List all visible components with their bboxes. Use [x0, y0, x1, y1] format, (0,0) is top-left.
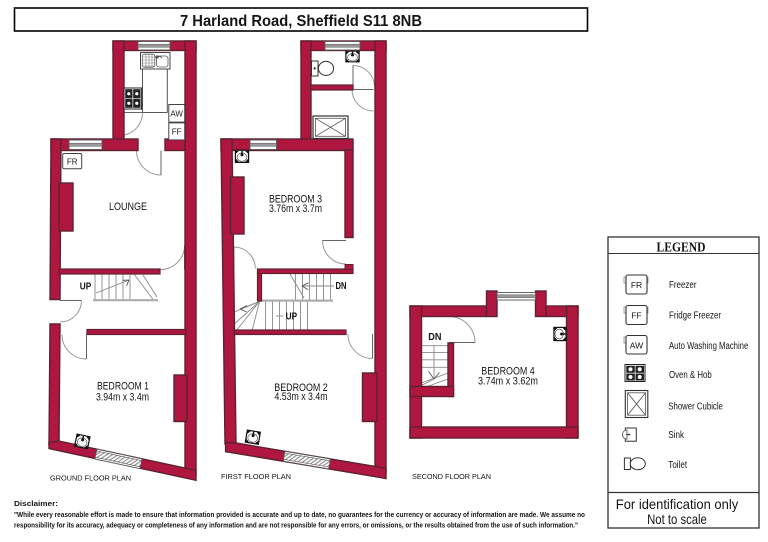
svg-text:FF: FF [631, 311, 641, 321]
svg-text:Fridge Freezer: Fridge Freezer [669, 311, 722, 322]
svg-text:7 Harland Road, Sheffield S11: 7 Harland Road, Sheffield S11 8NB [180, 13, 422, 30]
svg-text:AW: AW [630, 341, 643, 351]
svg-text:GROUND FLOOR PLAN: GROUND FLOOR PLAN [50, 474, 131, 483]
svg-text:FR: FR [67, 158, 78, 167]
svg-text:FR: FR [631, 280, 642, 290]
svg-text:Auto Washing Machine: Auto Washing Machine [669, 341, 749, 352]
svg-text:Sink: Sink [668, 430, 685, 441]
svg-text:Freezer: Freezer [669, 280, 697, 291]
svg-text:4.53m x 3.4m: 4.53m x 3.4m [275, 391, 328, 403]
svg-text:"While every reasonable effort: "While every reasonable effort is made t… [14, 512, 585, 519]
svg-text:LOUNGE: LOUNGE [109, 201, 147, 213]
svg-text:FIRST FLOOR PLAN: FIRST FLOOR PLAN [221, 472, 291, 481]
svg-text:DN: DN [336, 281, 347, 292]
svg-text:FF: FF [172, 128, 182, 137]
svg-text:Disclaimer:: Disclaimer: [14, 501, 58, 508]
svg-text:Shower Cubicle: Shower Cubicle [668, 402, 723, 413]
svg-text:Not to scale: Not to scale [647, 511, 707, 527]
svg-text:Toilet: Toilet [668, 460, 687, 471]
svg-text:3.74m x 3.62m: 3.74m x 3.62m [478, 376, 538, 388]
svg-text:UP: UP [80, 281, 92, 292]
svg-text:AW: AW [170, 110, 183, 119]
svg-text:responsibility for its accurac: responsibility for its accuracy, adequac… [14, 523, 578, 530]
svg-text:3.76m x 3.7m: 3.76m x 3.7m [269, 203, 322, 215]
svg-text:SECOND FLOOR PLAN: SECOND FLOOR PLAN [412, 472, 491, 481]
svg-text:Oven & Hob: Oven & Hob [669, 370, 712, 381]
svg-text:UP: UP [286, 311, 298, 322]
svg-text:For identification only: For identification only [616, 496, 738, 512]
svg-text:LEGEND: LEGEND [657, 240, 706, 255]
svg-text:DN: DN [428, 332, 441, 343]
svg-text:3.94m x 3.4m: 3.94m x 3.4m [96, 392, 149, 404]
